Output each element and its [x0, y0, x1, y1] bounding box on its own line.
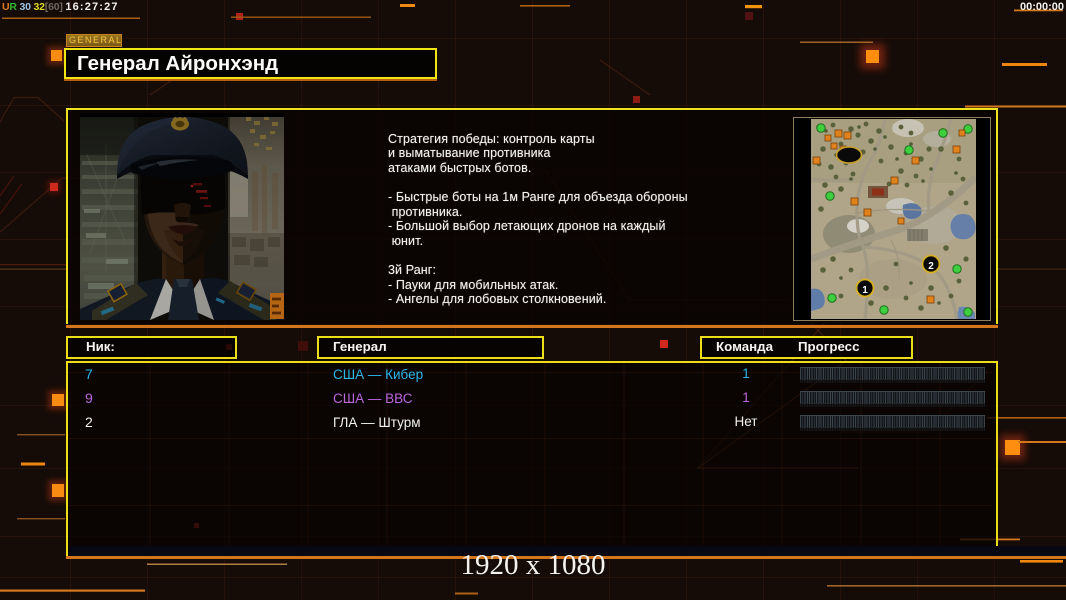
svg-text:2: 2 — [928, 261, 934, 272]
svg-text:1: 1 — [862, 285, 868, 296]
